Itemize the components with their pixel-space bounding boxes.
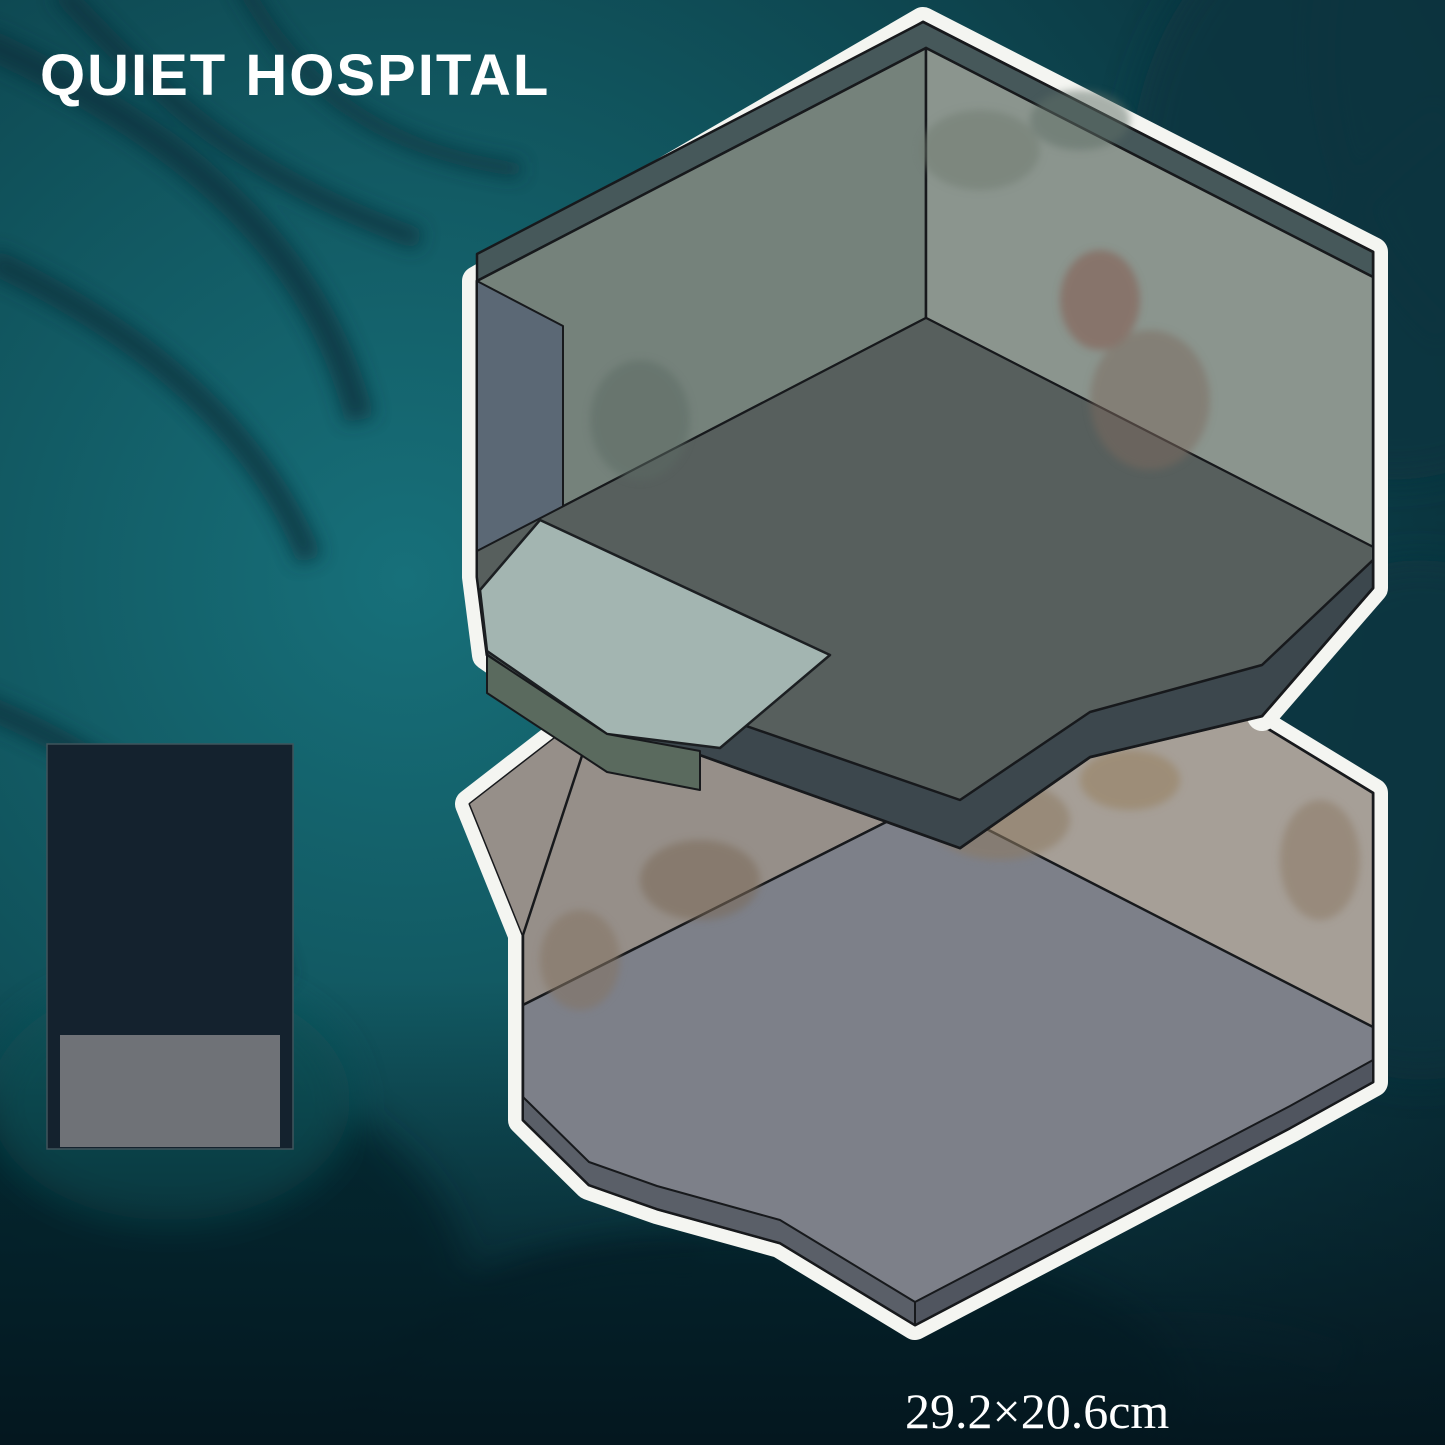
svg-text:29.2×20.6cm: 29.2×20.6cm (905, 1383, 1169, 1439)
svg-text:QUIET HOSPITAL: QUIET HOSPITAL (40, 43, 550, 108)
